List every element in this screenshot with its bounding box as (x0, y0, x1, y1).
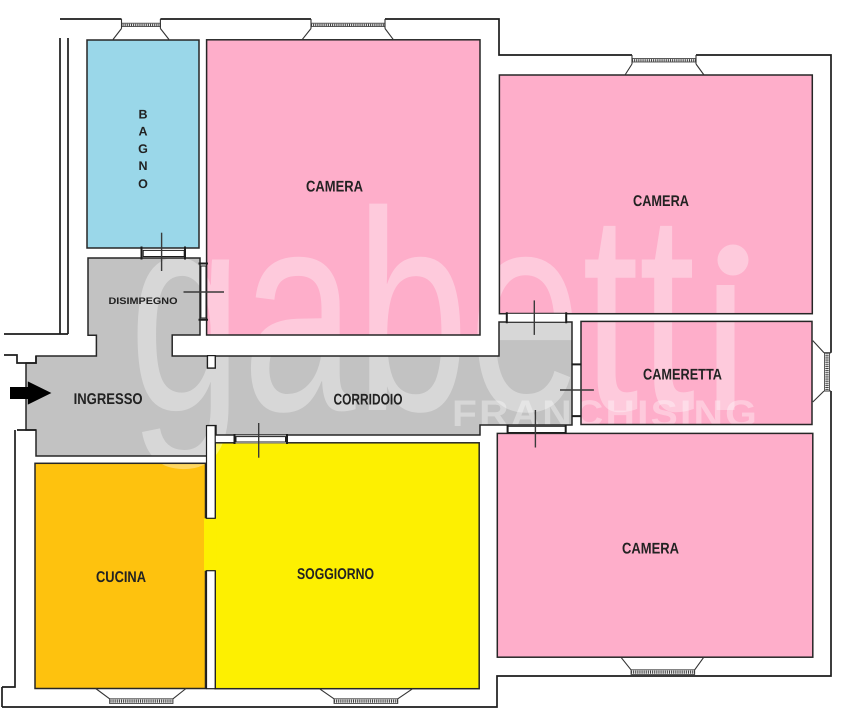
svg-text:O: O (138, 177, 148, 191)
svg-text:DISIMPEGNO: DISIMPEGNO (109, 296, 178, 307)
svg-text:CUCINA: CUCINA (96, 569, 146, 586)
svg-text:A: A (138, 125, 147, 139)
svg-text:G: G (138, 142, 148, 156)
svg-text:B: B (138, 108, 147, 122)
svg-text:N: N (138, 159, 147, 173)
svg-text:INGRESSO: INGRESSO (74, 391, 143, 408)
svg-text:CAMERA: CAMERA (633, 193, 689, 210)
svg-text:FRANCHISING: FRANCHISING (452, 393, 759, 434)
svg-text:CAMERETTA: CAMERETTA (643, 367, 722, 384)
svg-text:CAMERA: CAMERA (622, 541, 679, 558)
svg-text:SOGGIORNO: SOGGIORNO (297, 566, 374, 583)
svg-text:CAMERA: CAMERA (306, 179, 363, 196)
svg-text:CORRIDOIO: CORRIDOIO (334, 392, 403, 409)
